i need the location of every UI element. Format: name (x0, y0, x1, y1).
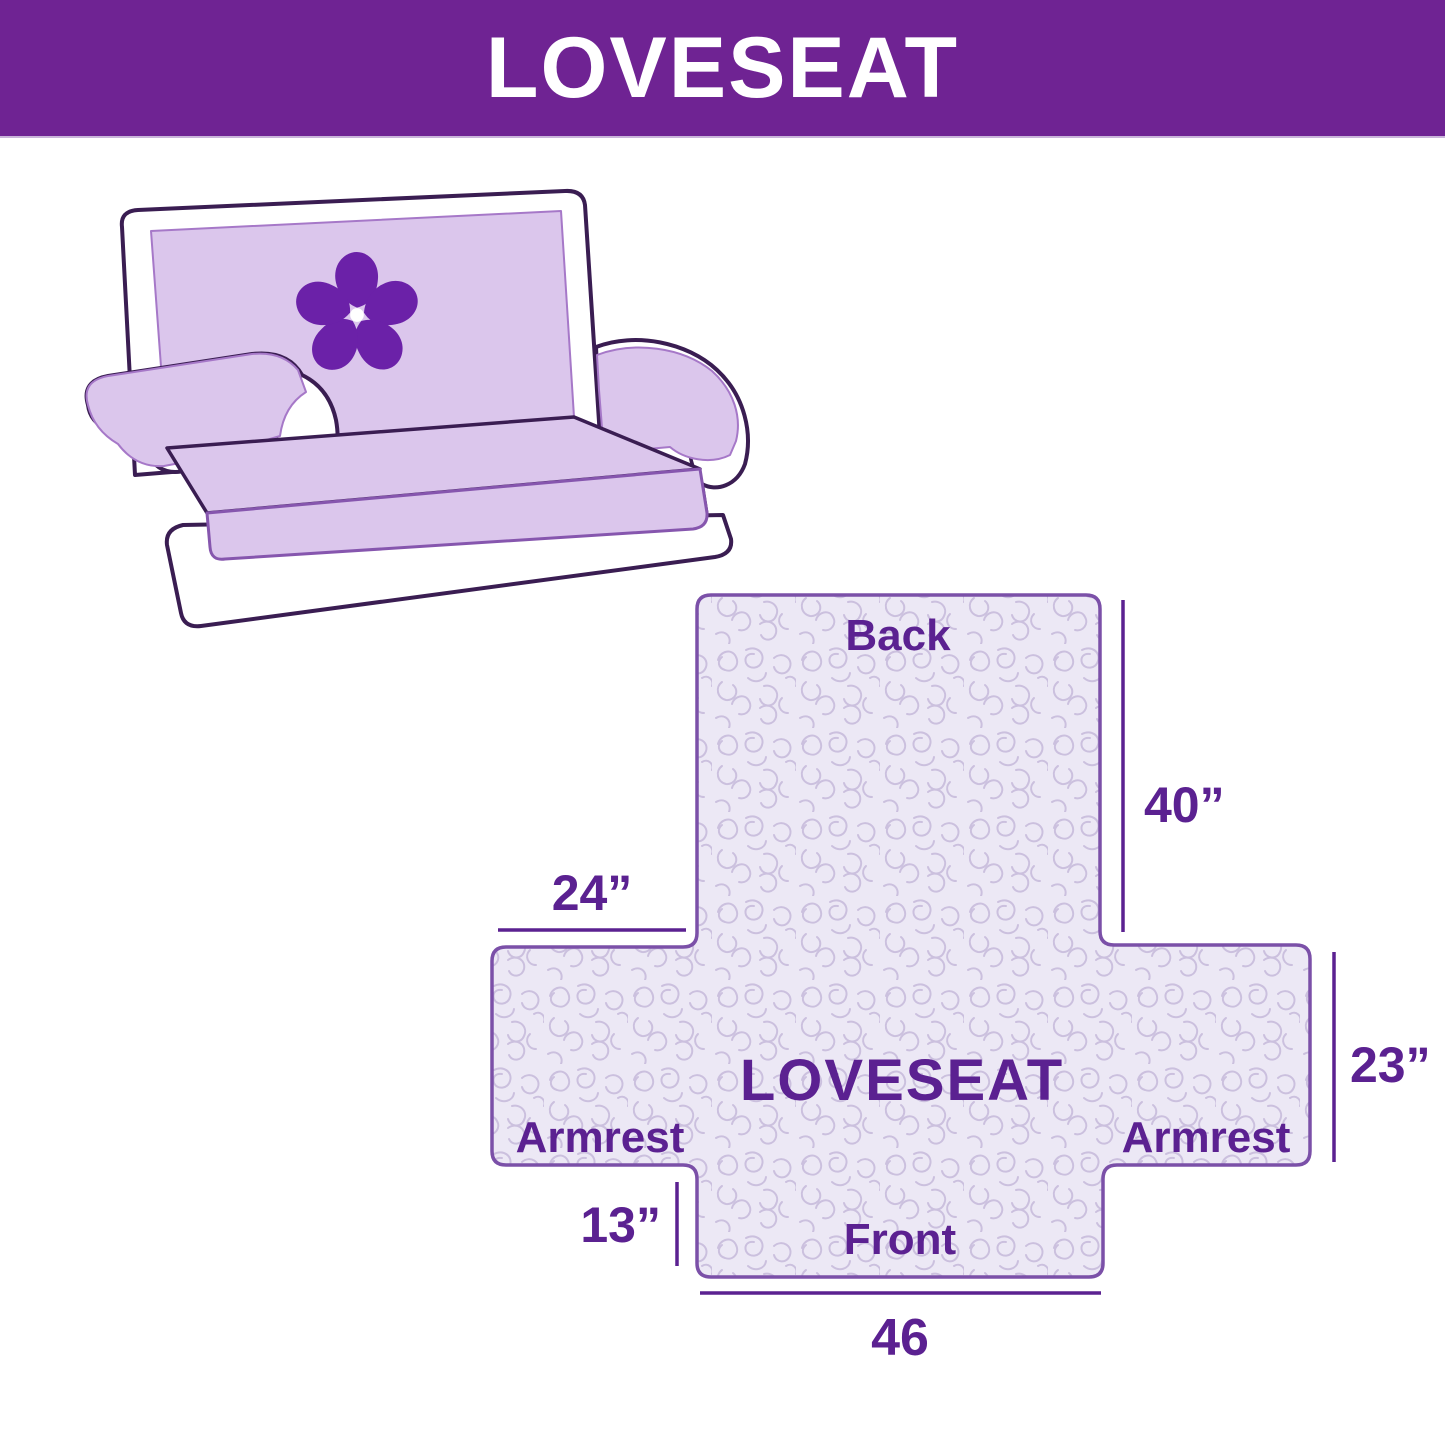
label-front: Front (844, 1215, 957, 1264)
cover-diagram: Back LOVESEAT Armrest Armrest Front 40” … (460, 560, 1445, 1380)
label-armrest-left: Armrest (516, 1113, 685, 1162)
label-armrest-right: Armrest (1122, 1113, 1291, 1162)
cover-outline-shape (492, 595, 1310, 1277)
header-banner: LOVESEAT (0, 0, 1445, 138)
page-title: LOVESEAT (0, 0, 1445, 136)
cover-diagram-wrap: Back LOVESEAT Armrest Armrest Front 40” … (460, 560, 1445, 1380)
label-center: LOVESEAT (740, 1048, 1064, 1113)
dim-armrest-top: 24” (552, 865, 633, 921)
dim-back-height: 40” (1144, 777, 1225, 833)
label-back: Back (845, 611, 951, 660)
dim-armrest-side: 23” (1350, 1037, 1431, 1093)
dim-front-drop: 13” (580, 1197, 661, 1253)
page-canvas: LOVESEAT (0, 0, 1445, 1445)
dim-front-width: 46 (871, 1309, 929, 1367)
